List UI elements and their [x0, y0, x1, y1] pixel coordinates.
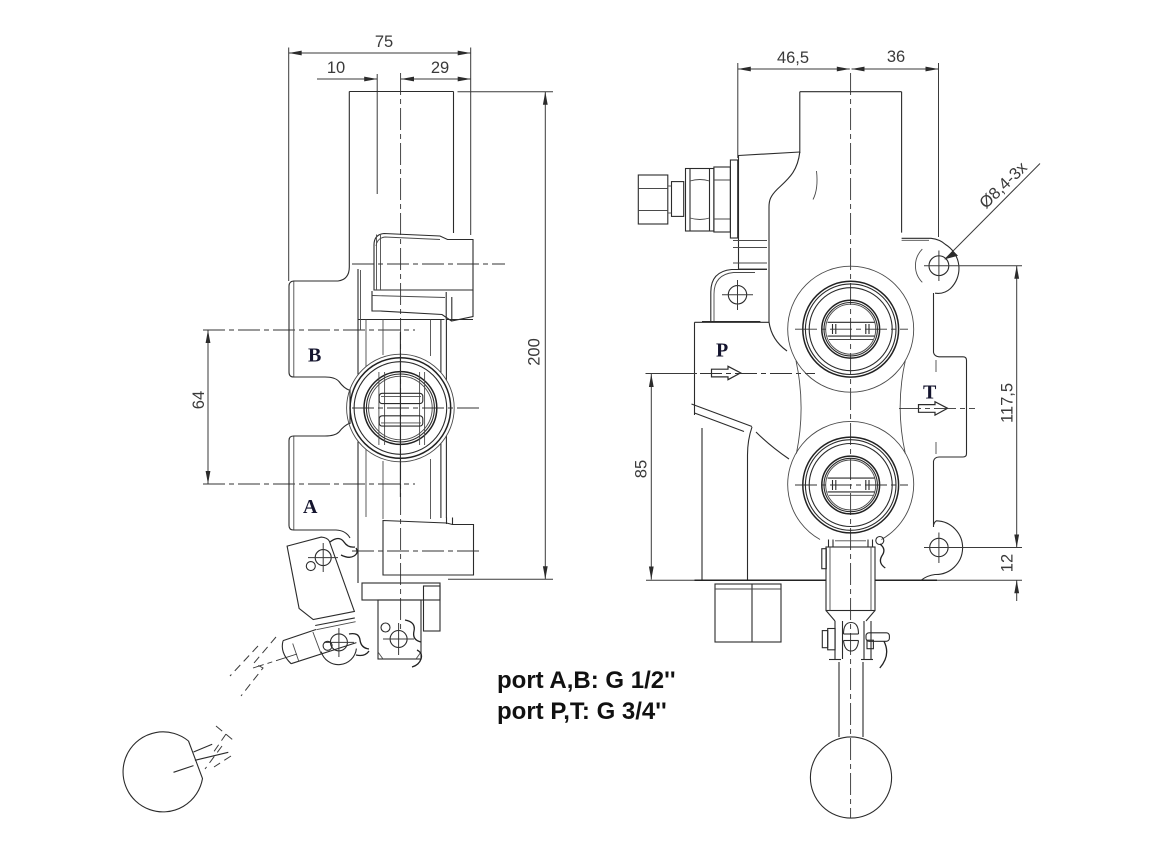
svg-text:A: A	[303, 496, 318, 518]
svg-text:46,5: 46,5	[777, 49, 809, 67]
svg-text:10: 10	[327, 59, 345, 77]
svg-text:port P,T: G 3/4'': port P,T: G 3/4''	[497, 698, 667, 725]
svg-text:port A,B: G 1/2'': port A,B: G 1/2''	[497, 667, 676, 694]
svg-text:P: P	[716, 340, 728, 362]
svg-text:12: 12	[999, 554, 1017, 572]
svg-text:29: 29	[431, 59, 449, 77]
svg-text:B: B	[308, 345, 321, 367]
svg-text:36: 36	[887, 48, 905, 66]
svg-text:T: T	[923, 382, 937, 404]
svg-text:75: 75	[375, 33, 393, 51]
svg-text:200: 200	[526, 338, 544, 366]
svg-text:85: 85	[633, 460, 651, 478]
svg-text:117,5: 117,5	[999, 383, 1017, 423]
svg-text:64: 64	[190, 391, 208, 409]
